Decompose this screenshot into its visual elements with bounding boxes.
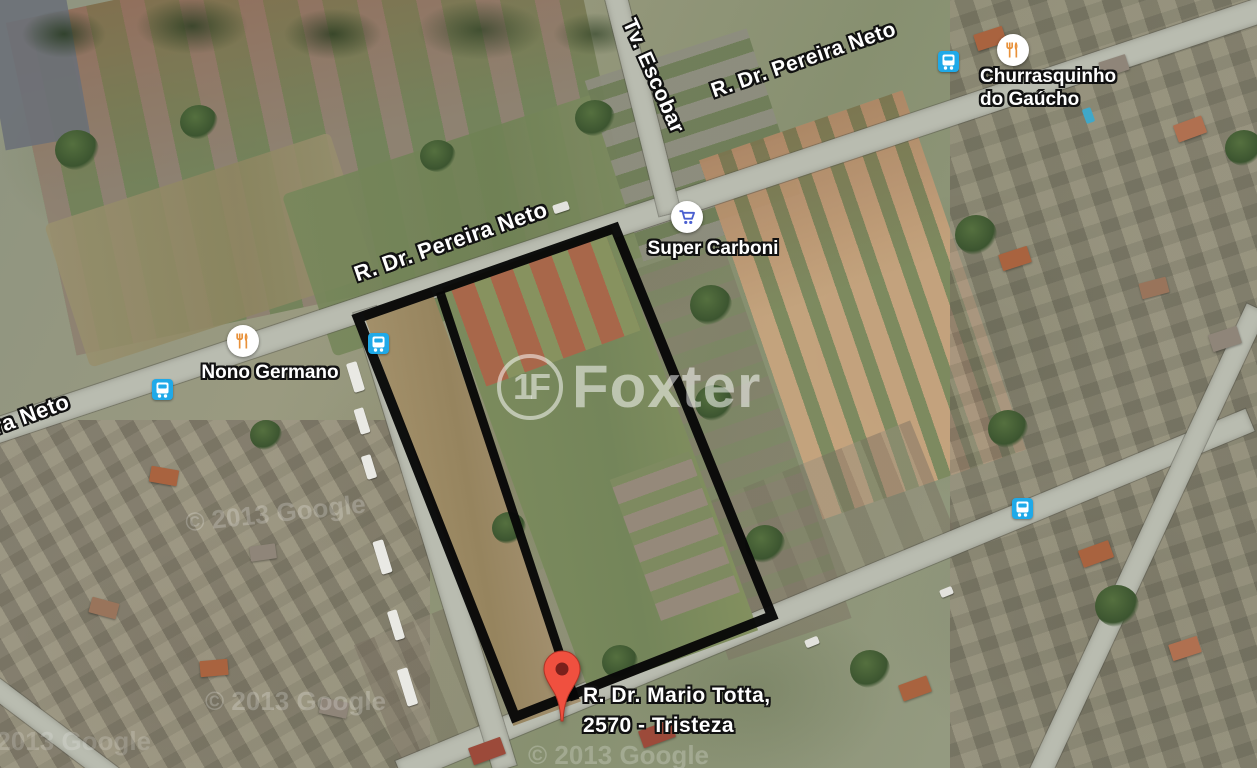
shopping-cart-icon [677, 207, 697, 227]
bus-stop-icon[interactable] [368, 333, 389, 354]
foxter-logo-circle: 1F [497, 354, 563, 420]
bus-stop-icon[interactable] [1012, 498, 1033, 519]
poi-churrasquinho-label-line2[interactable]: do Gaúcho [980, 89, 1079, 111]
restaurant-icon [233, 331, 253, 351]
lot-outline-path [358, 228, 772, 717]
poi-churrasquinho-label-line1[interactable]: Churrasquinho [980, 66, 1116, 88]
poi-super-carboni-icon[interactable] [671, 201, 703, 233]
foxter-watermark-text: Foxter [572, 352, 761, 421]
map-canvas[interactable]: © 2013 Google © 2013 Google © 2013 Googl… [0, 0, 1257, 768]
poi-super-carboni-label[interactable]: Super Carboni [648, 238, 779, 260]
poi-nono-germano-label[interactable]: Nono Germano [201, 362, 338, 384]
bus-stop-icon[interactable] [152, 379, 173, 400]
lot-divider-path [440, 292, 575, 700]
map-pin-icon[interactable] [543, 650, 581, 724]
bus-stop-icon[interactable] [938, 51, 959, 72]
pin-address-label-line1: R. Dr. Mario Totta, [583, 684, 771, 708]
foxter-logo-monogram: 1F [513, 366, 547, 408]
poi-churrasquinho-icon[interactable] [997, 34, 1029, 66]
poi-nono-germano-icon[interactable] [227, 325, 259, 357]
pin-address-label-line2: 2570 - Tristeza [583, 714, 734, 738]
restaurant-icon [1003, 40, 1023, 60]
